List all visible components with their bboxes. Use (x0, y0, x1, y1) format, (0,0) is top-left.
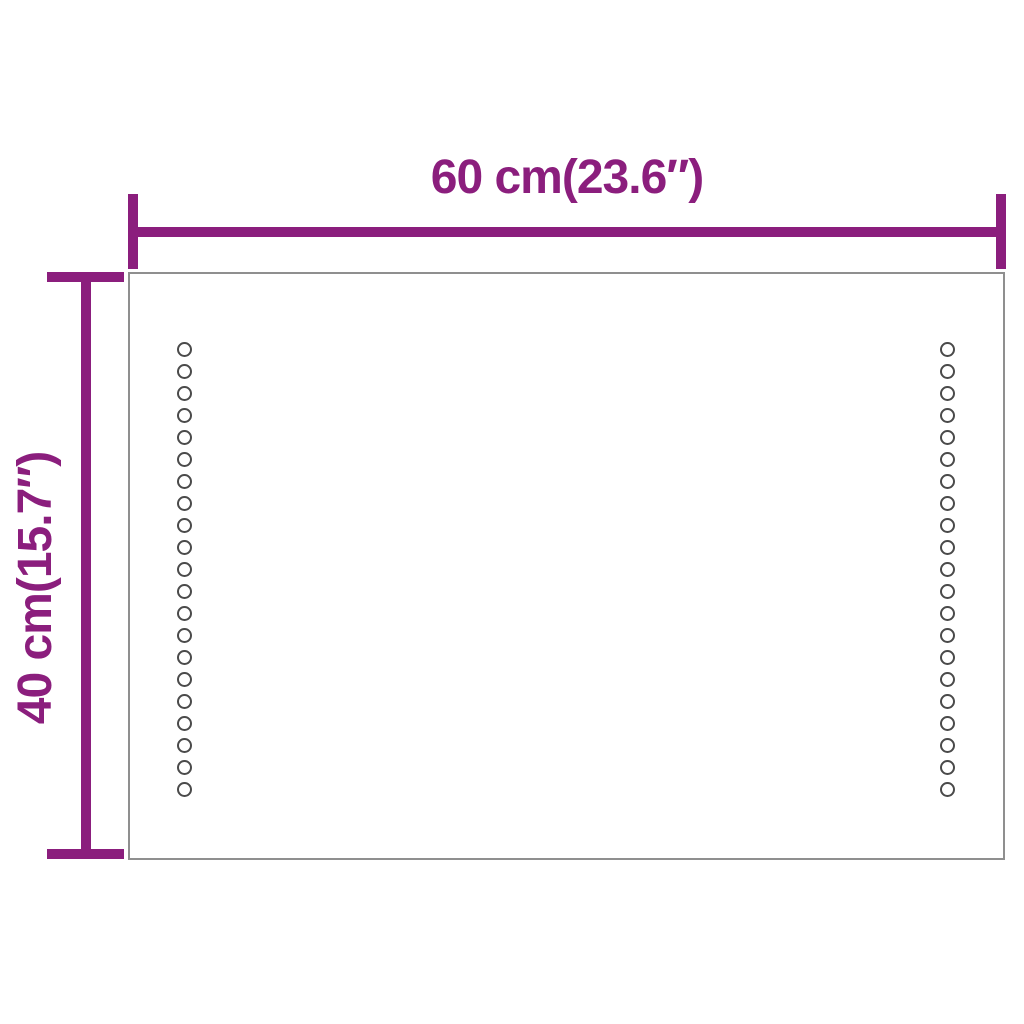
width-dimension-label: 60 cm(23.6″) (132, 150, 1002, 205)
led-dot (940, 738, 955, 753)
led-dot (940, 716, 955, 731)
led-dot (940, 474, 955, 489)
led-dot (177, 452, 192, 467)
height-dimension-tick-bottom (47, 849, 124, 859)
led-dot (177, 672, 192, 687)
height-dimension-tick-top (47, 272, 124, 282)
led-dot (177, 386, 192, 401)
led-dot (940, 540, 955, 555)
led-dot (940, 694, 955, 709)
led-dot (940, 342, 955, 357)
led-dot (940, 584, 955, 599)
led-column-right (940, 342, 955, 797)
led-dot (177, 474, 192, 489)
led-dot (940, 760, 955, 775)
width-dimension-line (132, 227, 1002, 237)
width-dimension-tick-right (996, 194, 1006, 269)
led-dot (177, 694, 192, 709)
led-dot (940, 452, 955, 467)
mirror-outline (128, 272, 1005, 860)
led-dot (177, 496, 192, 511)
led-dot (177, 760, 192, 775)
led-dot (940, 628, 955, 643)
led-dot (940, 496, 955, 511)
led-dot (177, 584, 192, 599)
led-dot (177, 628, 192, 643)
led-dot (177, 408, 192, 423)
led-dot (940, 650, 955, 665)
width-dimension-tick-left (128, 194, 138, 269)
dimension-diagram: 60 cm(23.6″) 40 cm(15.7″) (0, 0, 1024, 1024)
led-dot (940, 430, 955, 445)
led-dot (940, 672, 955, 687)
led-dot (940, 606, 955, 621)
led-dot (177, 518, 192, 533)
led-dot (940, 408, 955, 423)
height-dimension-line (81, 277, 91, 853)
led-dot (177, 606, 192, 621)
led-dot (177, 364, 192, 379)
led-dot (177, 782, 192, 797)
led-dot (940, 518, 955, 533)
led-dot (177, 342, 192, 357)
led-dot (177, 650, 192, 665)
led-dot (177, 716, 192, 731)
led-dot (177, 562, 192, 577)
led-dot (940, 364, 955, 379)
led-dot (940, 386, 955, 401)
led-dot (940, 562, 955, 577)
led-dot (940, 782, 955, 797)
led-dot (177, 540, 192, 555)
led-dot (177, 430, 192, 445)
led-column-left (177, 342, 192, 797)
led-dot (177, 738, 192, 753)
